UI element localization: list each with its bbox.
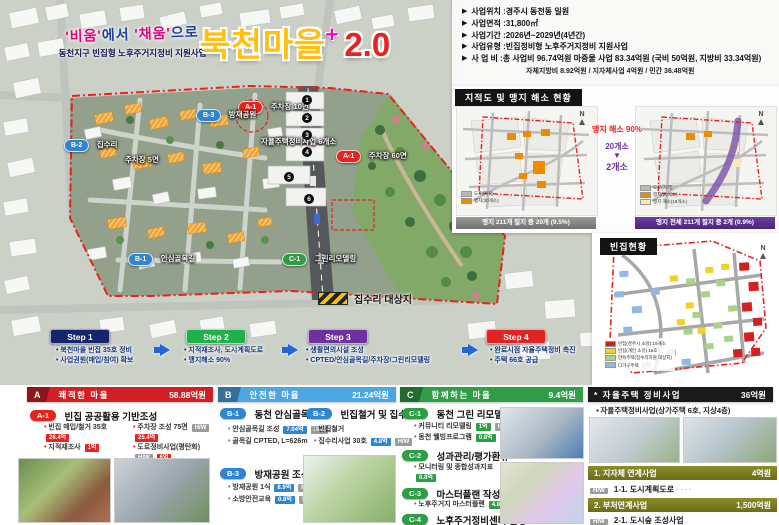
group-b3-title: B-3 방재공원 조성: [220, 465, 310, 483]
photo-program-render-2: [683, 417, 777, 463]
cadastral-map-after: 도로(지적) 맹지(20개소) 맹지 해소(18개소) N: [635, 106, 777, 216]
hw-tag: H/W: [590, 488, 608, 494]
building-number-1: 1: [302, 95, 312, 105]
building-number-3: 3: [302, 130, 312, 140]
step1-bullet-1: 사업권원(매입/참여) 확보: [56, 355, 133, 365]
map-marker-c1-remodel: C-1 그린리모델링: [282, 248, 356, 266]
cadastral-panel: 지적도 및 맹지 해소 현황: [452, 86, 779, 233]
building-number-4: 4: [302, 147, 312, 157]
road-swatch: [640, 185, 651, 191]
step1-chip: Step 1: [50, 329, 110, 344]
compass-icon: N: [579, 111, 585, 125]
arrow-down-icon: ▼: [590, 152, 644, 160]
section-a-header: A 쾌적한 마을 58.88억원: [27, 387, 213, 402]
program-sub1-header: 1. 지자체 연계사업 4억원: [588, 466, 777, 480]
dots-decor: ∙∙∙∙: [676, 485, 693, 494]
photo-a-parking: [114, 458, 210, 523]
step4-bullet-0: 완료시점 자율주택정비 촉진: [490, 345, 576, 355]
info-row: ▶ 사업유형 빈집정비형 노후주거지정비 지원사업: [462, 42, 779, 53]
photo-b-park: [303, 455, 396, 523]
private-owned-swatch: [605, 348, 616, 354]
b2-bullet-1: 집수리사업 30호 4.8억 H/W: [314, 437, 412, 447]
poster: A-1 주차장 10면 B-3 방재공원 B-2 집수리 주차장 5면 자율주택…: [0, 0, 779, 525]
cadastral-legend-before: 도로(지적) 맹지(20개소): [461, 191, 499, 205]
step2-bullet-0: 지적재조사, 도시계획도로: [184, 345, 263, 355]
info-row: ▶ 사 업 비 총 사업비 96.74억원 마중물 사업 83.34억원 (국비…: [462, 54, 779, 65]
program-sub2-header: 2. 부처연계사업 1,500억원: [588, 498, 777, 512]
a1-bullet-1: 지적재조사 1억: [44, 443, 130, 453]
bullet-triangle-icon: ▶: [462, 42, 467, 53]
relief-swatch: [640, 199, 651, 205]
vacant-house-panel: 빈집현황: [592, 233, 779, 385]
project-info-panel: ▶ 사업위치 경주시 동천동 일원 ▶ 사업면적 31,800㎡ ▶ 사업기간 …: [452, 0, 779, 86]
cadastral-legend-after: 도로(지적) 맹지(20개소) 맹지 해소(18개소): [640, 185, 687, 205]
step2-bullet-1: 맹지해소 90%: [184, 355, 230, 365]
c1-pill: C-1: [282, 253, 307, 266]
section-a-amount: 58.88억원: [169, 389, 213, 401]
sub2-amount: 1,500억원: [736, 500, 777, 511]
program-header: * 자율주택 정비사업 36억원: [588, 387, 773, 402]
step3-bullet-0: 생활편의시설 조성: [306, 345, 364, 355]
city-owned-swatch: [605, 341, 616, 347]
road-swatch: [461, 191, 472, 197]
b2-pill: B-2: [64, 139, 89, 152]
mangji-relief-callout: 맹지 해소 90% 20개소 ▼ 2개소: [590, 124, 644, 173]
plus-icon: +: [325, 22, 338, 47]
cadastral-caption-after: 맹지 전체 211개 필지 중 2개 (0.9%): [635, 217, 775, 229]
building-number-2: 2: [302, 113, 312, 123]
step2-chip: Step 2: [186, 329, 246, 344]
section-b-amount: 21.24억원: [352, 389, 396, 401]
bottom-sections: A 쾌적한 마을 58.88억원 A-1 빈집 공공활용 기반조성 빈집 매입/…: [0, 385, 779, 525]
section-b-header: B 안전한 마을 21.24억원: [218, 387, 396, 402]
bullet-triangle-icon: ▶: [462, 31, 467, 42]
info-row: ▶ 사업기간 2026년~2029년(4년간): [462, 31, 779, 42]
step3-chip: Step 3: [308, 329, 368, 344]
a1-mid-pill: A-1: [336, 150, 361, 163]
mangji-swatch: [461, 198, 472, 204]
step4-chip: Step 4: [486, 329, 546, 344]
repair-target-swatch: [605, 355, 616, 361]
info-row: ▶ 사업위치 경주시 동천동 일원: [462, 7, 779, 18]
program-amount: 36억원: [741, 389, 773, 401]
program-sub1-item: H/W 1-1. 도시계획도로 ∙∙∙∙: [590, 484, 693, 495]
map-marker-b2-repair: B-2 집수리: [64, 134, 117, 152]
a1-bullet-0: 빈집 매입/철거 35호 26.4억: [44, 423, 130, 443]
step4-bullet-1: 주택 66호 공급: [490, 355, 538, 365]
photo-program-render-1: [589, 417, 680, 463]
program-bullet: 자율주택정비사업(상가주택 6호, 지상4층): [596, 405, 730, 416]
info-row: ▶ 사업면적 31,800㎡: [462, 19, 779, 30]
bullet-triangle-icon: ▶: [462, 7, 467, 18]
b3-pill: B-3: [196, 109, 221, 122]
c1-bullet-0: 커뮤니티 리모델링 1억 H/W: [414, 422, 512, 432]
section-c-amount: 9.4억원: [549, 389, 583, 401]
building-number-5: 5: [284, 172, 294, 182]
sub1-amount: 4억원: [752, 468, 777, 479]
map-marker-a1-parking60: A-1 주차장 60면: [336, 145, 407, 163]
title-version: 2.0: [344, 26, 390, 63]
compass-icon: N: [760, 245, 766, 259]
bullet-triangle-icon: ▶: [462, 54, 467, 65]
section-c-header: C 함께하는 마을 9.4억원: [400, 387, 583, 402]
step1-bullet-0: 북천마을 빈집 35호 정비: [56, 345, 132, 355]
bullet-triangle-icon: ▶: [462, 19, 467, 30]
map-text-jayul: 자율주택정비사업 6개소: [258, 131, 336, 149]
program-sub2-item: H/W 2-1. 도시숲 조성사업: [590, 515, 684, 525]
map-legend-repair-target: 집수리 대상지: [318, 291, 412, 306]
map-marker-b1-alley: B-1 안심골목길: [128, 248, 195, 266]
page-title: 북천마을+2.0: [200, 18, 390, 66]
map-text-parking5: 주차장 5면: [122, 149, 159, 167]
photo-c-masterplan: [500, 462, 584, 524]
a1-bullet-2: 주차장 조성 75면 H/W 25.4억: [133, 423, 215, 443]
group-b2-title: B-2 빈집철거 및 집수리: [306, 405, 416, 423]
vacant-title: 빈집현황: [600, 238, 657, 255]
mangji-swatch: [640, 192, 651, 198]
b1-pill: B-1: [128, 253, 153, 266]
step3-bullet-1: CPTED/안심골목길/주차장/그린리모델링: [306, 355, 430, 365]
subtitle: 동천지구 빈집형 노후주거지정비 지원사업: [40, 47, 225, 59]
title-main: 북천마을: [200, 26, 325, 63]
cadastral-caption-before: 맹지 211개 필지 중 20개 (9.5%): [456, 217, 596, 229]
hazard-stripe-icon: [318, 292, 348, 305]
cadastral-map-before: 도로(지적) 맹지(20개소) N: [456, 106, 598, 216]
b1-bullet-1: 골목길 CPTED, L=626m: [228, 437, 308, 447]
photo-c-remodel: [500, 407, 584, 459]
step-arrow-icon: [160, 344, 170, 356]
photo-a-garden: [18, 458, 111, 523]
compass-icon: N: [758, 111, 764, 125]
hw-tag: H/W: [590, 519, 608, 525]
group-b1-title: B-1 동천 안심골목길: [220, 405, 318, 423]
map-marker-b3-park: B-3 방재공원: [196, 104, 256, 122]
b2-bullet-0: 빈집철거: [314, 425, 344, 435]
vacant-legend: 빈집(경주시 소유) 19개소 빈집(개인 소유) 16호 단독주택(집수리지원…: [602, 338, 675, 371]
info-note: 자체지방비 8.92억원 / 지자체사업 4억원 / 민간 36.48억원: [526, 66, 779, 76]
cadastral-title: 지적도 및 맹지 해소 현황: [455, 89, 582, 106]
step-arrow-icon: [288, 344, 298, 356]
building-number-6: 6: [304, 194, 314, 204]
c2-bullet-0: 모니터링 및 종합성과지표 0.8억: [414, 463, 498, 483]
step-arrow-icon: [468, 344, 478, 356]
group-c1-title: C-1 동천 그린 리모델링: [402, 405, 512, 423]
c3-bullet-0: 노후주거지 마스터플랜 4.8억: [414, 500, 509, 510]
multi-family-swatch: [605, 362, 616, 368]
